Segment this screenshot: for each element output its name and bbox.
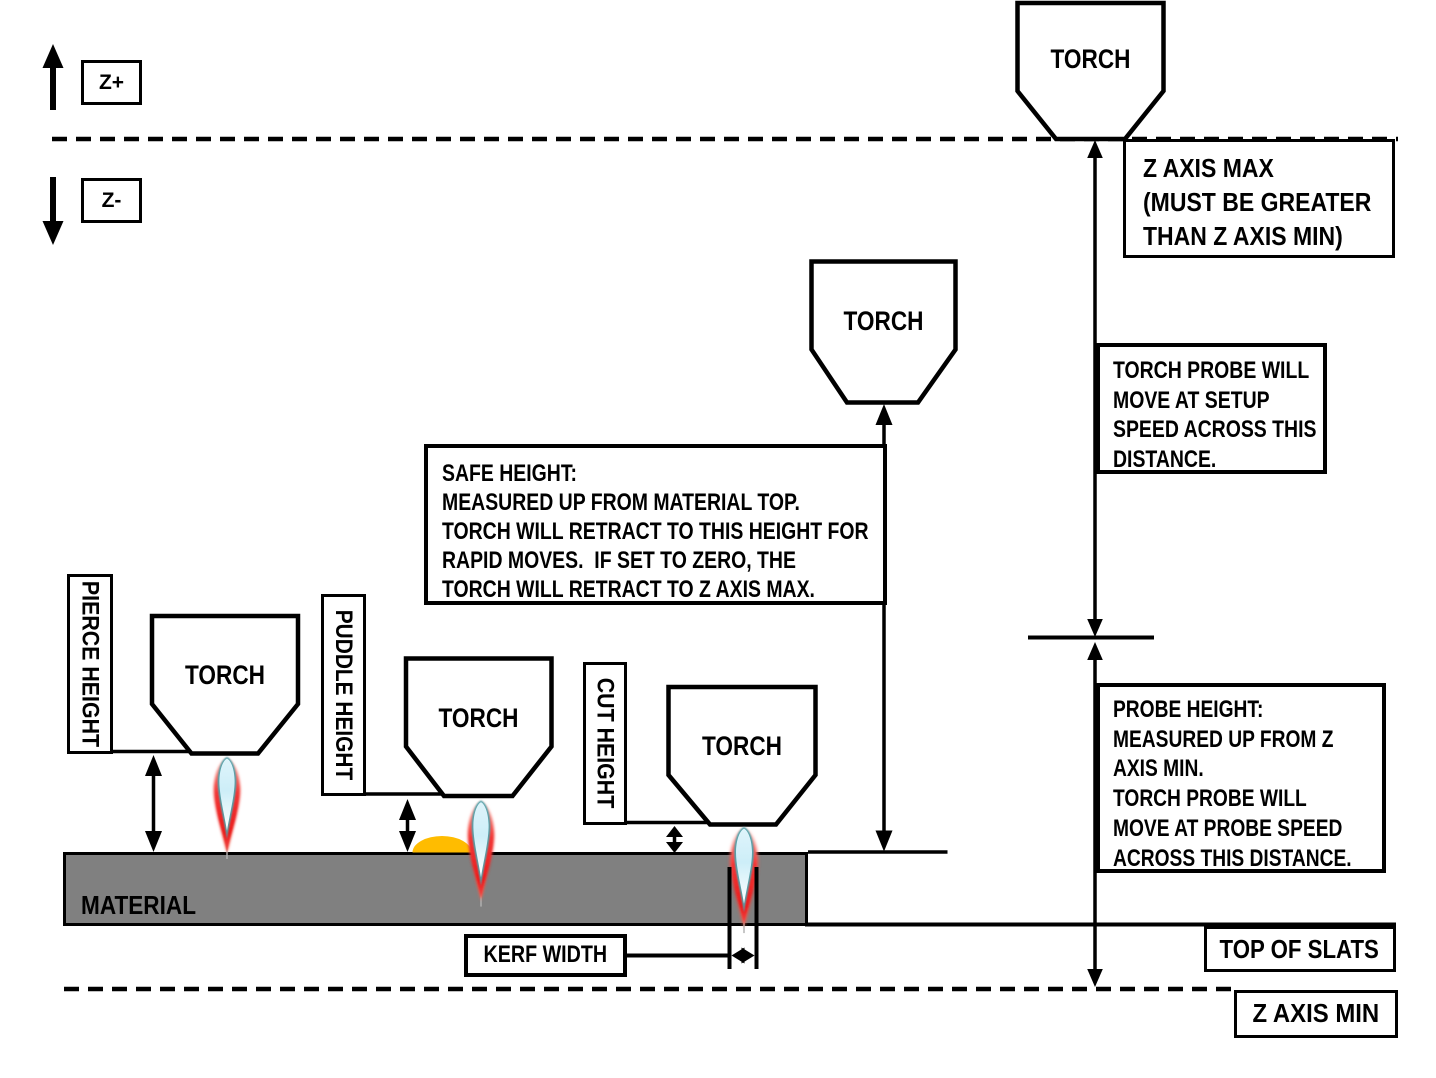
- svg-text:TORCH: TORCH: [1051, 44, 1131, 74]
- svg-text:TORCH: TORCH: [185, 660, 265, 690]
- svg-text:MATERIAL: MATERIAL: [81, 890, 196, 920]
- svg-text:TORCH: TORCH: [702, 731, 782, 761]
- svg-text:TORCH: TORCH: [439, 703, 519, 733]
- svg-text:TORCH: TORCH: [844, 306, 924, 336]
